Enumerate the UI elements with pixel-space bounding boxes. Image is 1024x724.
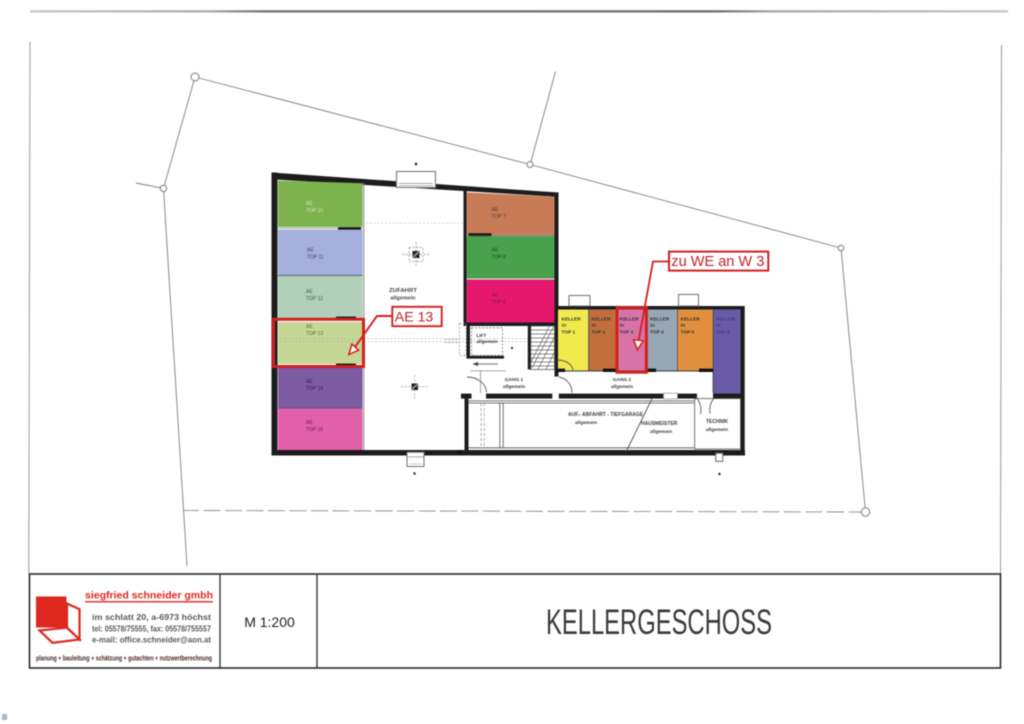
svg-text:GANG 1: GANG 1	[505, 377, 524, 383]
svg-text:TOP 1: TOP 1	[562, 330, 576, 336]
svg-text:TOP 6: TOP 6	[716, 330, 730, 336]
svg-text:TOP 4: TOP 4	[650, 330, 664, 336]
svg-text:allgemein: allgemein	[391, 296, 416, 302]
svg-text:AE 13: AE 13	[395, 308, 434, 324]
svg-text:AE: AE	[306, 289, 313, 295]
svg-text:TOP 2: TOP 2	[592, 330, 606, 336]
svg-text:zu: zu	[716, 323, 721, 328]
svg-text:allgemein: allgemein	[650, 429, 672, 435]
svg-text:TOP 10: TOP 10	[306, 208, 323, 214]
svg-text:TOP 8: TOP 8	[492, 255, 506, 261]
svg-text:TOP 12: TOP 12	[306, 296, 323, 302]
svg-text:AE: AE	[492, 207, 499, 213]
svg-text:allgemein: allgemein	[575, 420, 597, 426]
svg-text:KELLER: KELLER	[562, 316, 582, 322]
svg-text:AE: AE	[306, 420, 313, 426]
svg-text:zu: zu	[681, 323, 686, 328]
svg-text:tel: 05578/75555, fax: 05578/7: tel: 05578/75555, fax: 05578/755557	[92, 625, 211, 634]
svg-text:AUF.- ABFAHRT - TIEFGARAGE: AUF.- ABFAHRT - TIEFGARAGE	[568, 412, 644, 418]
svg-text:TOP 14: TOP 14	[306, 386, 323, 392]
svg-text:KELLER: KELLER	[681, 316, 701, 322]
svg-text:allgemein: allgemein	[477, 339, 498, 344]
svg-text:TOP 7: TOP 7	[492, 214, 506, 220]
svg-text:TOP 15: TOP 15	[306, 427, 323, 433]
svg-text:AE: AE	[306, 201, 313, 207]
svg-text:ZUFAHRT: ZUFAHRT	[389, 288, 418, 294]
svg-text:AE: AE	[307, 248, 314, 254]
svg-text:M 1:200: M 1:200	[244, 614, 295, 630]
svg-text:TOP 13: TOP 13	[306, 331, 323, 337]
svg-text:KELLER: KELLER	[620, 316, 640, 322]
svg-text:AE: AE	[306, 324, 313, 330]
svg-text:KELLER: KELLER	[716, 316, 736, 322]
svg-text:TOP 3: TOP 3	[620, 330, 634, 336]
svg-text:GANG 2: GANG 2	[613, 377, 632, 383]
svg-text:AE: AE	[492, 248, 499, 254]
svg-text:TOP 11: TOP 11	[307, 254, 324, 260]
svg-text:zu: zu	[562, 323, 567, 328]
svg-text:im schlatt 20, a-6973 höchst: im schlatt 20, a-6973 höchst	[92, 612, 211, 622]
svg-text:zu WE an W 3: zu WE an W 3	[671, 254, 764, 270]
svg-text:TOP 5: TOP 5	[681, 330, 695, 336]
svg-text:allgemein: allgemein	[611, 384, 633, 390]
svg-text:KELLERGESCHOSS: KELLERGESCHOSS	[546, 603, 772, 642]
svg-text:zu: zu	[620, 323, 625, 328]
svg-text:e-mail: office.schneider@aon.a: e-mail: office.schneider@aon.at	[92, 636, 211, 645]
svg-text:LIFT: LIFT	[477, 333, 487, 338]
svg-text:TOP 9: TOP 9	[492, 300, 506, 306]
svg-text:allgemein: allgemein	[706, 427, 728, 433]
svg-text:KELLER: KELLER	[650, 316, 670, 322]
svg-text:allgemein: allgemein	[503, 384, 525, 390]
svg-text:zu: zu	[650, 323, 655, 328]
svg-text:AE: AE	[492, 293, 499, 299]
svg-text:TECHNIK: TECHNIK	[706, 419, 729, 425]
svg-text:AE: AE	[306, 379, 313, 385]
svg-text:HAUSMEISTER: HAUSMEISTER	[641, 421, 678, 427]
svg-text:planung + bauleitung + schätzu: planung + bauleitung + schätzung + gutac…	[36, 654, 212, 663]
svg-text:zu: zu	[592, 323, 597, 328]
svg-text:KELLER: KELLER	[592, 316, 612, 322]
svg-text:siegfried schneider gmbh: siegfried schneider gmbh	[85, 591, 213, 602]
